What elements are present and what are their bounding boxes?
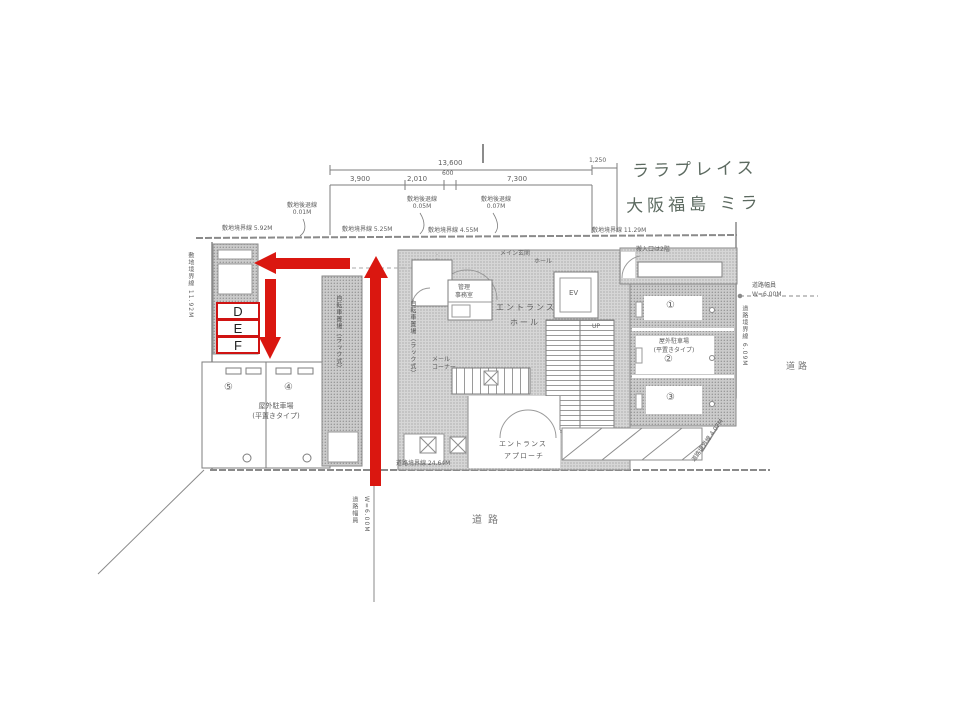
parking-stall-5: ⑤ bbox=[224, 382, 233, 394]
red-box-d-label: D bbox=[233, 304, 242, 319]
dim-total: 13,600 bbox=[438, 159, 463, 167]
red-arrow-down-head bbox=[259, 337, 281, 359]
dim-seg3: 600 bbox=[442, 171, 453, 178]
parking-stall-1: ① bbox=[666, 300, 675, 312]
red-arrow-left-stem bbox=[276, 258, 350, 269]
left-parking-note2: (平置きタイプ) bbox=[236, 412, 316, 420]
mail-label1: メール bbox=[432, 357, 450, 364]
left-parking-note1: 屋外駐車場 bbox=[236, 402, 316, 410]
boundary-bottom: 道路境界線 24.64M bbox=[396, 461, 450, 468]
office-label1: 管理 bbox=[458, 285, 470, 292]
setback3: 敷地後退線 0.07M bbox=[466, 197, 526, 211]
red-arrow-left-head bbox=[254, 252, 276, 274]
parking-stall-2: ② bbox=[664, 354, 673, 366]
elevator-label: EV bbox=[569, 289, 578, 297]
red-box-f-label: F bbox=[234, 338, 242, 353]
red-arrow-down-stem bbox=[265, 279, 276, 337]
site-plan-linework bbox=[0, 0, 960, 720]
road-width-right-label: 道路幅員 bbox=[752, 283, 776, 290]
red-box-e-label: E bbox=[234, 321, 243, 336]
bicycle-label-right: 自転車置場（ラック式） bbox=[408, 300, 415, 450]
road-width-bottom-label: 道路幅員 bbox=[350, 496, 357, 566]
entrance-hall-label1: エントランス bbox=[496, 303, 556, 312]
mail-label2: コーナー bbox=[432, 365, 456, 372]
parking-stall-3: ③ bbox=[666, 392, 675, 404]
upper-hall-label: ホール bbox=[534, 259, 552, 266]
road-width-right-value: W=6.00M bbox=[752, 292, 782, 299]
stairs-up-label: UP bbox=[592, 324, 600, 331]
dim-seg4: 7,300 bbox=[507, 175, 527, 183]
red-arrow-up-stem bbox=[370, 278, 381, 486]
road-label-bottom: 道路 bbox=[472, 515, 504, 527]
entrance-hall-label2: ホール bbox=[510, 318, 540, 327]
handwritten-note-line1: ララプレイス bbox=[632, 153, 758, 181]
red-box-e: E bbox=[216, 319, 260, 337]
bicycle-label-left: 自転車置場（ラック式） bbox=[334, 295, 341, 440]
parking-stall-4: ④ bbox=[284, 382, 293, 394]
setback1: 敷地後退線 0.01M bbox=[272, 203, 332, 217]
main-entrance-label: メイン玄関 bbox=[500, 251, 530, 258]
approach-label2: アプローチ bbox=[504, 452, 544, 460]
right-parking-note2: (平置きタイプ) bbox=[638, 348, 710, 355]
delivery-note-label: 搬入口は2階 bbox=[636, 247, 670, 254]
handwritten-note-line2: 大阪福島 ミラ bbox=[626, 188, 762, 217]
road-width-bottom-value: W=6.00M bbox=[362, 496, 369, 566]
red-box-f: F bbox=[216, 336, 260, 354]
dim-seg2: 2,010 bbox=[407, 175, 427, 183]
boundary-top1: 敷地境界線 5.92M bbox=[222, 226, 272, 233]
boundary-top4: 敷地境界線 11.29M bbox=[592, 228, 646, 235]
dim-right-offset: 1,250 bbox=[589, 158, 606, 165]
boundary-top2: 敷地境界線 5.25M bbox=[342, 227, 392, 234]
red-box-d: D bbox=[216, 302, 260, 320]
dim-seg1: 3,900 bbox=[350, 175, 370, 183]
red-arrow-up-head bbox=[364, 256, 388, 278]
site-plan-page: ララプレイス 大阪福島 ミラ 13,600 1,250 3,900 2,010 … bbox=[0, 0, 960, 720]
boundary-right: 道路境界線 6.09M bbox=[740, 305, 747, 400]
road-label-right: 道路 bbox=[786, 362, 810, 372]
bicycle-parking-column bbox=[322, 276, 362, 466]
approach-label1: エントランス bbox=[499, 440, 547, 448]
boundary-left: 敷地境界線 11.92M bbox=[186, 252, 193, 402]
office-label2: 事務室 bbox=[455, 293, 473, 300]
setback2: 敷地後退線 0.05M bbox=[392, 197, 452, 211]
boundary-top3: 敷地境界線 4.55M bbox=[428, 228, 478, 235]
right-parking-block bbox=[630, 284, 736, 426]
right-parking-note1: 屋外駐車場 bbox=[638, 339, 710, 346]
